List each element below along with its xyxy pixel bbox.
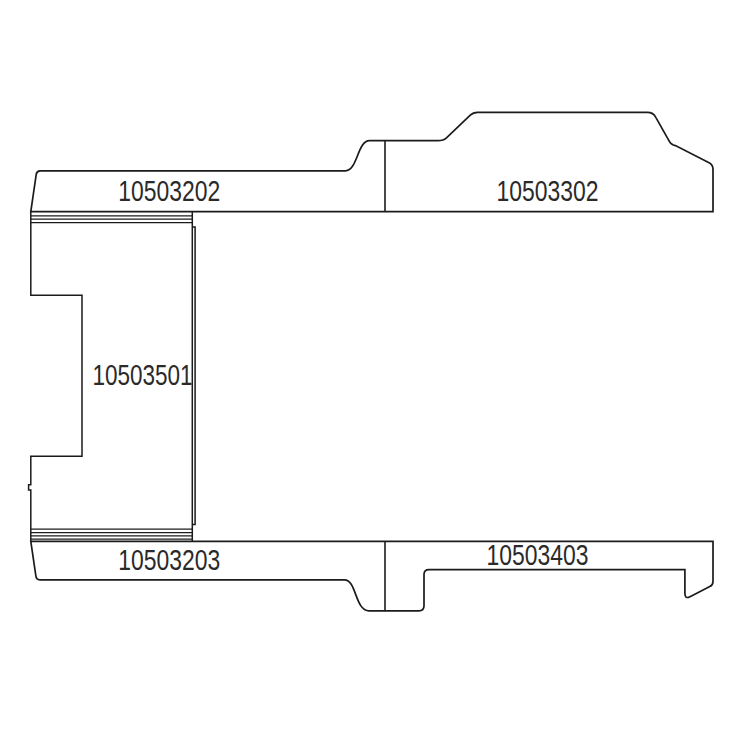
left-block-left-edge <box>29 212 82 542</box>
part-label-10503203[interactable]: 10503203 <box>118 544 220 576</box>
left-block-bottom-hatch-band <box>31 529 193 539</box>
parts-diagram-svg: 10503202 10503302 10503501 10503203 1050… <box>0 0 750 750</box>
part-label-10503302[interactable]: 10503302 <box>497 175 599 207</box>
left-block-top-hatch-band <box>31 216 193 223</box>
part-label-10503403[interactable]: 10503403 <box>487 539 589 571</box>
part-label-10503501[interactable]: 10503501 <box>93 359 193 391</box>
part-label-10503202[interactable]: 10503202 <box>118 175 220 207</box>
parts-diagram-canvas: 10503202 10503302 10503501 10503203 1050… <box>0 0 750 750</box>
